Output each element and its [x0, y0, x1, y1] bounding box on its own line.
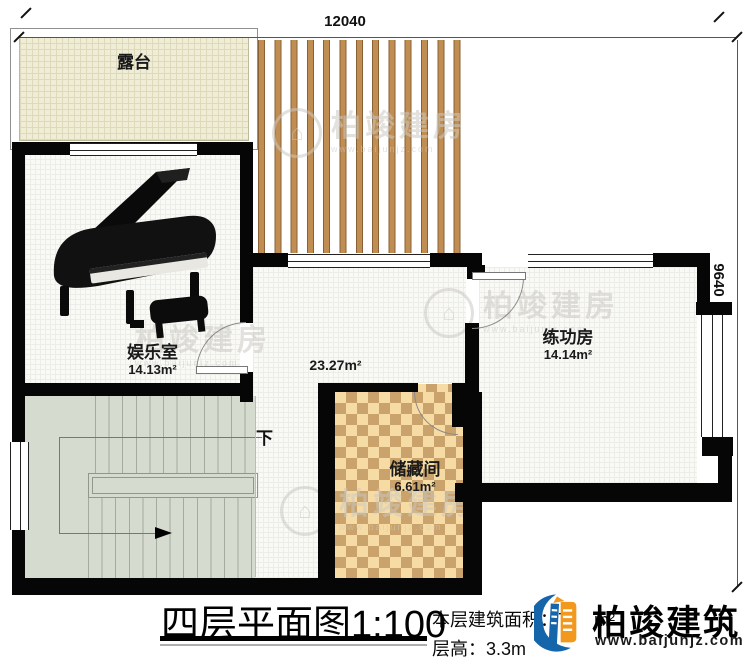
hall-label: 23.27m²	[288, 357, 383, 373]
dimension-tick	[20, 7, 31, 18]
terrace-door-window	[70, 143, 197, 156]
watermark-logo-icon: ⌂	[272, 108, 322, 158]
storage-label: 储藏间 6.61m²	[360, 460, 470, 494]
practice-room-name: 练功房	[513, 328, 623, 348]
practice-room-label: 练功房 14.14m²	[513, 328, 623, 362]
storage-door-floor	[415, 384, 452, 392]
stairs-walkline-left	[59, 437, 60, 534]
practice-east-wall-upper	[697, 253, 710, 308]
practice-room-area: 14.14m²	[513, 348, 623, 363]
title-underline-thick	[160, 636, 427, 641]
stairwell-north-wall	[12, 383, 253, 396]
grand-piano-image	[38, 158, 238, 340]
top-dimension-line	[19, 37, 737, 38]
entertainment-east-wall-upper	[240, 153, 253, 323]
stairs-direction-arrow	[155, 527, 172, 539]
stairs-walkline-top	[59, 437, 262, 438]
dimension-tick	[713, 11, 724, 22]
terrace-label: 露台	[11, 53, 257, 73]
west-wall-upper	[12, 142, 25, 442]
floor-height-value: 3.3m	[486, 639, 526, 658]
storage-name: 储藏间	[360, 460, 470, 480]
watermark-subtext: www.baijunjz.com	[331, 144, 467, 154]
right-dimension-line	[737, 40, 738, 587]
stairs-walkline-bottom	[59, 533, 159, 534]
stairs-upper-flight	[95, 396, 255, 473]
corridor-floor	[253, 383, 318, 578]
stairs-down-label: 下	[256, 424, 273, 449]
practice-north-window	[528, 254, 653, 268]
hall-area: 23.27m²	[288, 357, 383, 373]
entertainment-label: 娱乐室 14.13m²	[95, 343, 210, 377]
watermark: ⌂ 柏竣建房 www.baijunjz.com	[272, 108, 467, 158]
practice-south-wall	[455, 483, 732, 502]
storage-north-wall	[318, 383, 418, 392]
floor-plan-canvas: 露台 ⌂ 柏竣建房 www.baijunjz.com 柏竣建房 www.baij…	[0, 0, 750, 658]
terrace-railing: 露台	[10, 28, 258, 150]
storage-area: 6.61m²	[360, 480, 470, 495]
practice-west-wall	[465, 323, 479, 392]
hall-north-wall-left	[240, 253, 288, 267]
title-underline-thin	[160, 644, 427, 646]
floor-area-info: 本层建筑面积：7m²	[432, 606, 615, 632]
terrace-name: 露台	[117, 53, 151, 72]
company-website: www.baijunjz.com	[595, 633, 744, 649]
watermark-subtext: www.baijunjz.com	[339, 522, 475, 532]
entertainment-name: 娱乐室	[95, 343, 210, 363]
practice-east-window	[701, 315, 723, 437]
top-dimension-value: 12040	[315, 13, 375, 30]
corridor-storage-wall	[318, 383, 335, 578]
stairs-handrail	[88, 473, 258, 498]
right-dimension-value: 9640	[710, 250, 727, 310]
entertainment-area: 14.13m²	[95, 363, 210, 378]
practice-door-leaf	[472, 272, 526, 280]
practice-east-jut	[702, 437, 733, 456]
watermark-text: 柏竣建房	[331, 112, 467, 142]
west-wall-window	[10, 442, 29, 530]
hall-north-window	[288, 254, 430, 268]
company-logo-icon	[534, 592, 580, 656]
